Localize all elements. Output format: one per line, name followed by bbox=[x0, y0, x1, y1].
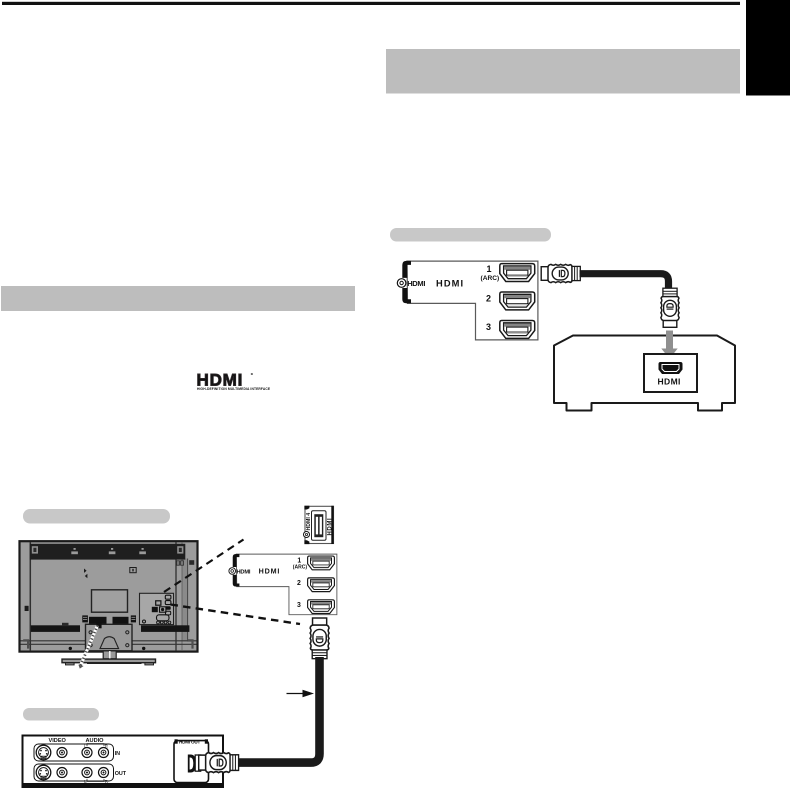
svg-text:HDMI OUT: HDMI OUT bbox=[179, 739, 201, 744]
svg-text:°: ° bbox=[251, 372, 254, 380]
svg-text:IN: IN bbox=[115, 751, 120, 757]
svg-text:OUT: OUT bbox=[115, 771, 127, 777]
svg-text:HIGH-DEFINITION MULTIMEDIA INT: HIGH-DEFINITION MULTIMEDIA INTERFACE bbox=[197, 387, 271, 391]
svg-text:AUDIO: AUDIO bbox=[86, 738, 105, 744]
svg-text:VIDEO: VIDEO bbox=[49, 738, 67, 744]
svg-text:HDMI: HDMI bbox=[327, 518, 333, 536]
svg-text:R: R bbox=[105, 779, 108, 784]
svg-text:HDMI: HDMI bbox=[658, 377, 681, 387]
